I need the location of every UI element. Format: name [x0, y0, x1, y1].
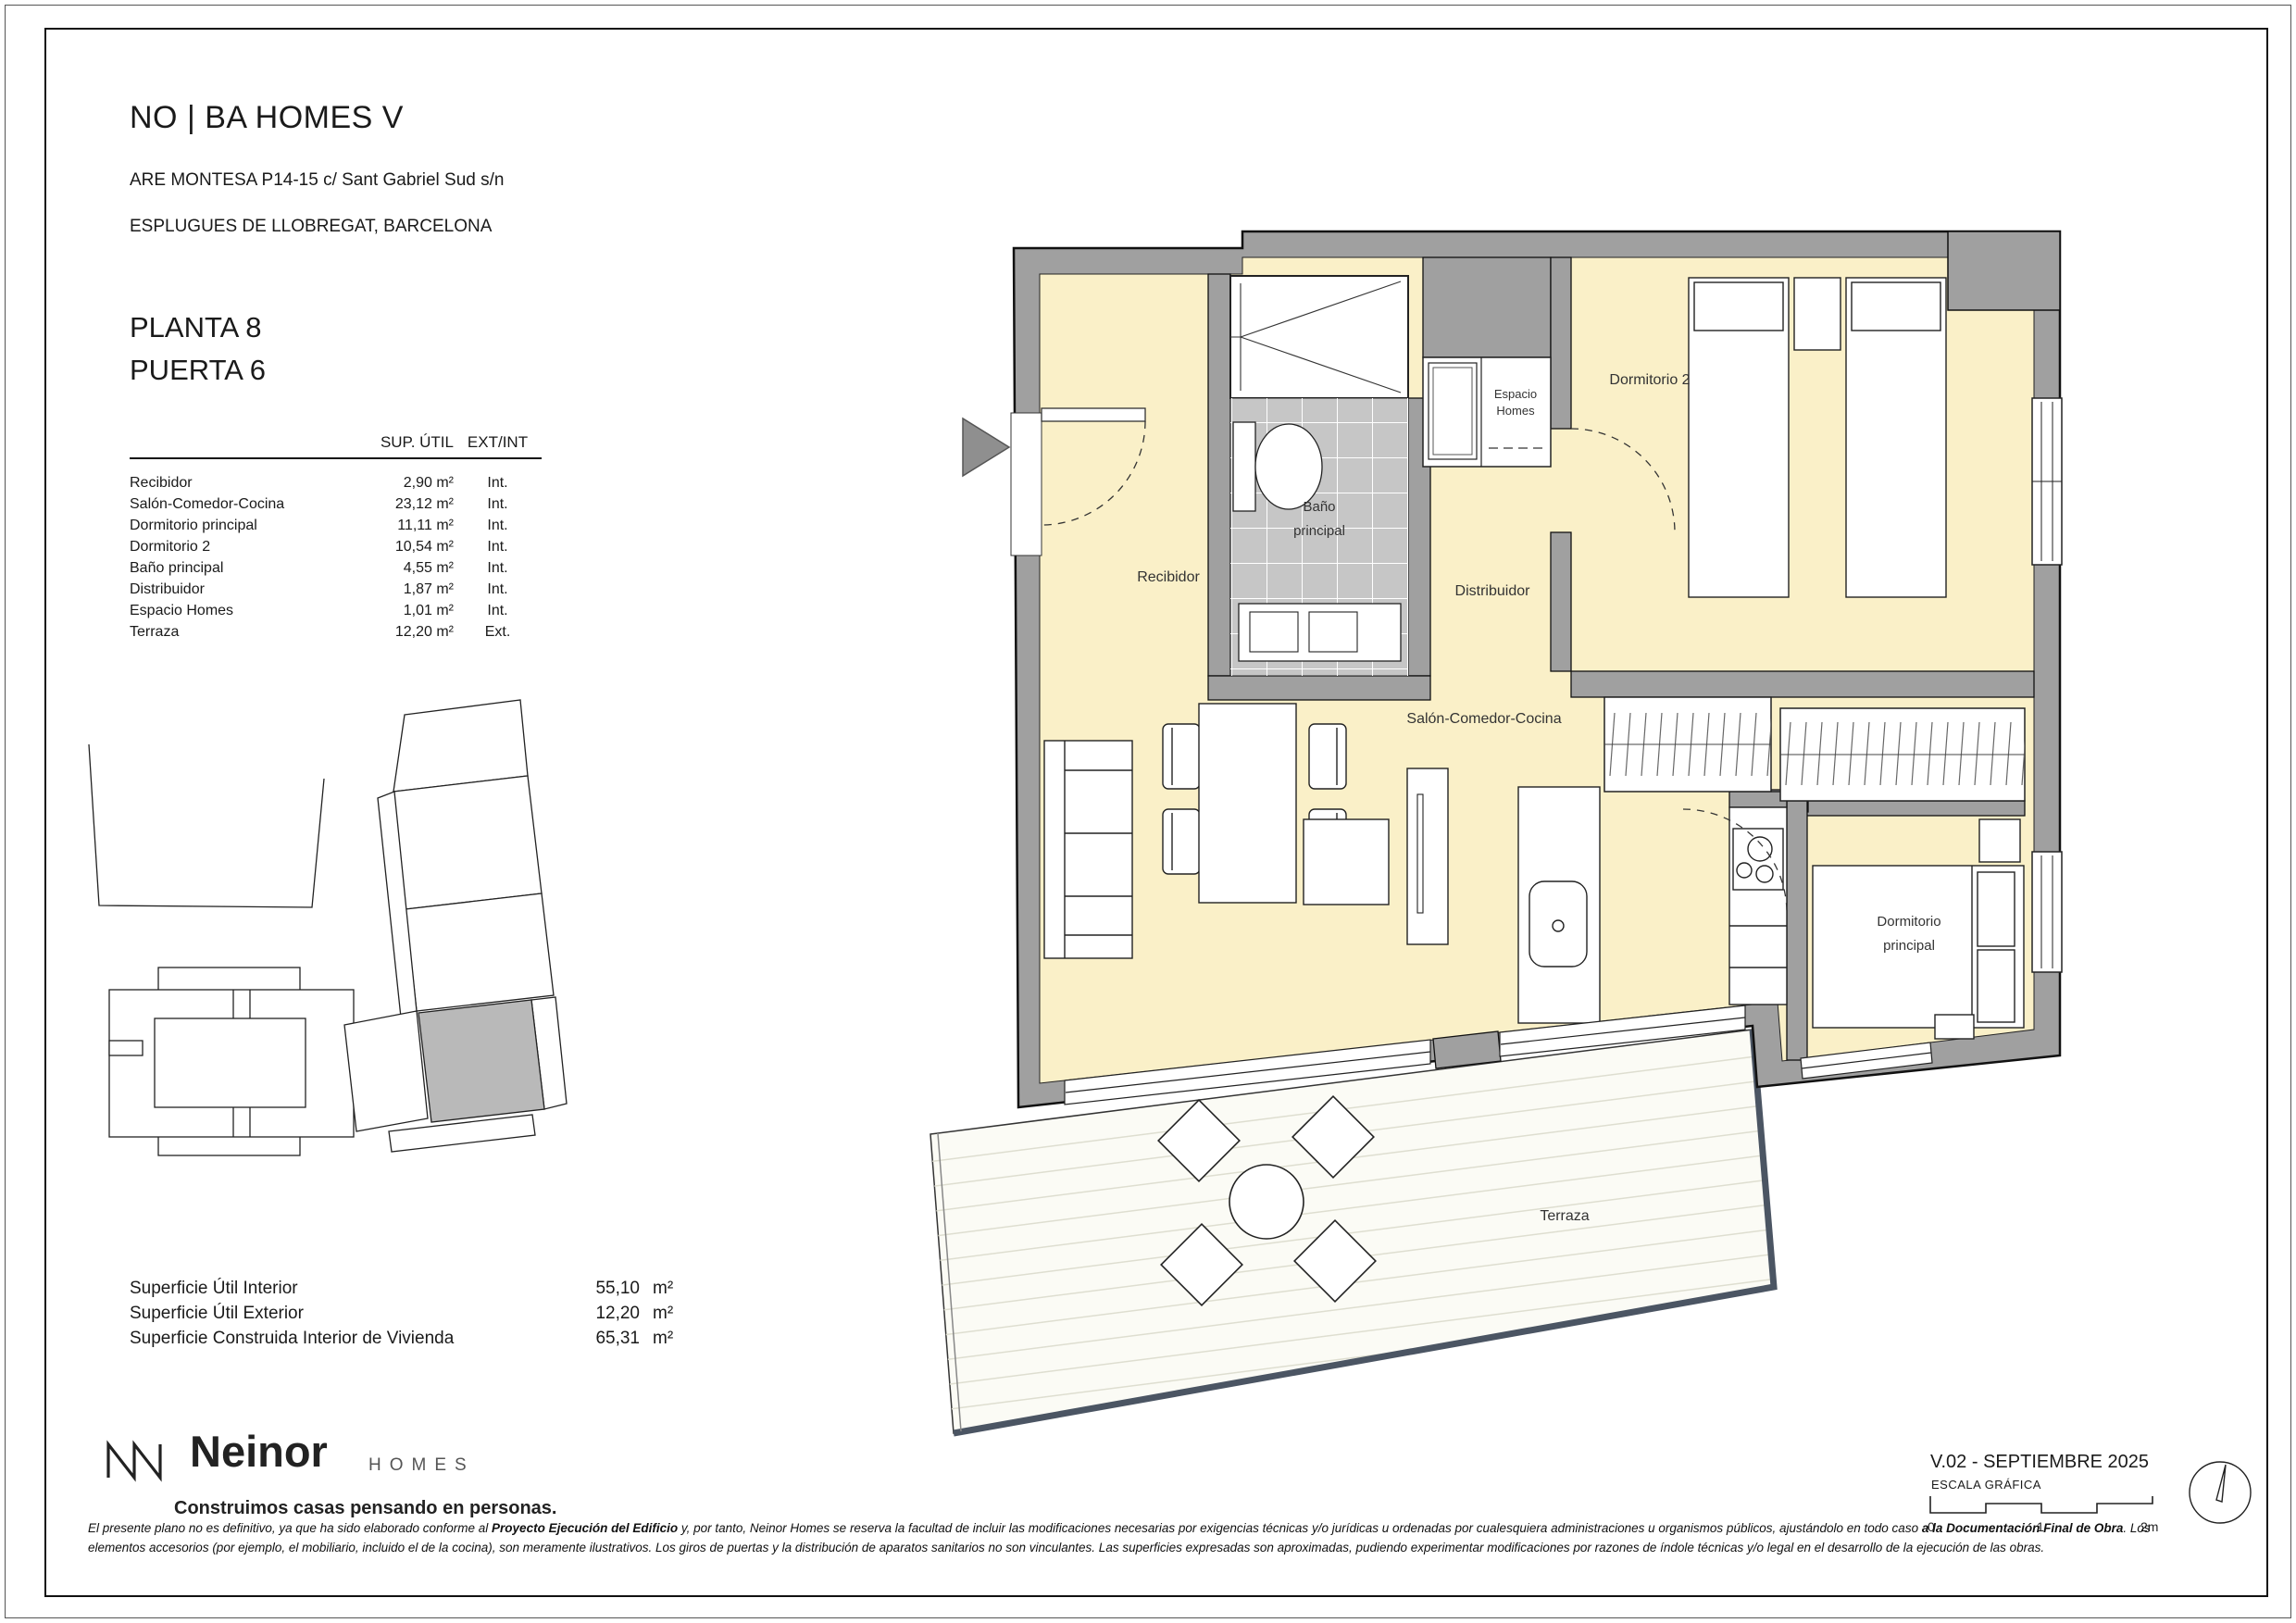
highlighted-unit — [418, 1000, 544, 1122]
label-dormppal-1: Dormitorio — [1877, 914, 1940, 930]
kitchen-counter-icon — [1729, 807, 1787, 1005]
vanity-icon — [1239, 604, 1401, 661]
site-boundary — [89, 744, 324, 907]
address-line2: ESPLUGUES DE LLOBREGAT, BARCELONA — [130, 217, 492, 237]
logo-sub: HOMES — [368, 1455, 475, 1476]
wardrobes — [1604, 697, 2025, 801]
room-area: 11,11 m² — [338, 515, 454, 536]
neinor-logo-icon — [104, 1433, 180, 1489]
label-recibidor: Recibidor — [1137, 569, 1200, 585]
wardrobe-1-icon — [1604, 697, 1771, 792]
floor-label: PLANTA 8 — [130, 311, 261, 344]
table-row: Dormitorio principal 11,11 m² Int. — [130, 515, 542, 536]
coffee-table-icon — [1304, 819, 1389, 905]
summary-value: 12,20 — [569, 1301, 653, 1326]
table-row: Recibidor 2,90 m² Int. — [130, 472, 542, 493]
room-area: 23,12 m² — [338, 493, 454, 515]
sink-icon — [1553, 920, 1564, 931]
summary-row: Superficie Útil Interior 55,10 m² — [130, 1276, 694, 1301]
summary-unit: m² — [653, 1301, 694, 1326]
entrance-door-leaf — [1042, 408, 1145, 421]
counter-anchor-wall — [1729, 792, 1787, 807]
address-line1: ARE MONTESA P14-15 c/ Sant Gabriel Sud s… — [130, 170, 504, 191]
areas-table-header: SUP. ÚTIL EXT/INT — [130, 433, 542, 459]
room-name: Baño principal — [130, 557, 338, 579]
nightstand-icon — [1979, 819, 2020, 862]
label-espacio-2: Homes — [1496, 404, 1535, 418]
dorm2-left-wall-top — [1551, 257, 1571, 429]
room-type: Int. — [454, 579, 542, 600]
table-row: Espacio Homes 1,01 m² Int. — [130, 600, 542, 621]
room-name: Espacio Homes — [130, 600, 338, 621]
header-sup-util: SUP. ÚTIL — [338, 433, 454, 452]
wardrobe-2-icon — [1780, 708, 2025, 801]
north-compass-icon — [2190, 1462, 2251, 1523]
summary-row: Superficie Construida Interior de Vivien… — [130, 1326, 694, 1351]
bath-bottom-wall — [1208, 676, 1430, 700]
room-name: Terraza — [130, 621, 338, 643]
kitchen-bedroom-wall — [1787, 801, 1807, 1060]
room-type: Int. — [454, 557, 542, 579]
table-row: Baño principal 4,55 m² Int. — [130, 557, 542, 579]
bath-left-wall — [1208, 274, 1230, 676]
key-plan — [89, 700, 567, 1155]
floor-plan-svg: Recibidor Baño principal Espacio Homes D… — [0, 0, 2296, 1623]
room-area: 2,90 m² — [338, 472, 454, 493]
room-name: Dormitorio principal — [130, 515, 338, 536]
kitchen-island-icon — [1518, 787, 1600, 1023]
room-name: Dormitorio 2 — [130, 536, 338, 557]
summary-unit: m² — [653, 1276, 694, 1301]
summary-row: Superficie Útil Exterior 12,20 m² — [130, 1301, 694, 1326]
header-ext-int: EXT/INT — [454, 433, 542, 452]
shower-icon — [1230, 276, 1408, 398]
page-title: NO | BA HOMES V — [130, 100, 404, 136]
plan-version: V.02 - SEPTIEMBRE 2025 — [1930, 1452, 2149, 1473]
room-type: Int. — [454, 600, 542, 621]
terrace-table-icon — [1229, 1165, 1304, 1239]
bed-single-2-icon — [1846, 278, 1946, 597]
logo-brand: Neinor — [190, 1426, 328, 1477]
room-type: Int. — [454, 493, 542, 515]
hob-icon — [1733, 829, 1783, 890]
espacio-top-wall — [1423, 257, 1551, 357]
table-row: Distribuidor 1,87 m² Int. — [130, 579, 542, 600]
label-salon: Salón-Comedor-Cocina — [1406, 711, 1561, 727]
room-name: Salón-Comedor-Cocina — [130, 493, 338, 515]
dorm2-bottom-wall — [1571, 671, 2034, 697]
label-dormitorio2: Dormitorio 2 — [1609, 372, 1690, 388]
room-name: Distribuidor — [130, 579, 338, 600]
room-type: Int. — [454, 515, 542, 536]
table-row: Dormitorio 2 10,54 m² Int. — [130, 536, 542, 557]
summary-label: Superficie Útil Interior — [130, 1276, 569, 1301]
nightstand-icon — [1794, 278, 1841, 350]
window-dormitorio2 — [2032, 398, 2062, 565]
logo-tagline: Construimos casas pensando en personas. — [174, 1498, 556, 1519]
label-distribuidor: Distribuidor — [1455, 583, 1531, 599]
room-area: 1,01 m² — [338, 600, 454, 621]
table-row: Terraza 12,20 m² Ext. — [130, 621, 542, 643]
plan-sheet: Recibidor Baño principal Espacio Homes D… — [0, 0, 2296, 1623]
summary-value: 55,10 — [569, 1276, 653, 1301]
wall-under-wardrobe2 — [1780, 801, 2025, 816]
summary-unit: m² — [653, 1326, 694, 1351]
disclaimer-text: El presente plano no es definitivo, ya q… — [88, 1518, 2157, 1557]
table-row: Salón-Comedor-Cocina 23,12 m² Int. — [130, 493, 542, 515]
room-type: Ext. — [454, 621, 542, 643]
summary-table: Superficie Útil Interior 55,10 m² Superf… — [130, 1276, 694, 1351]
label-bano-2: principal — [1293, 523, 1345, 539]
summary-label: Superficie Construida Interior de Vivien… — [130, 1326, 569, 1351]
sofa-icon — [1044, 741, 1132, 958]
summary-value: 65,31 — [569, 1326, 653, 1351]
toilet-icon — [1233, 422, 1322, 511]
entrance-arrow-icon — [963, 418, 1009, 476]
washer-icon — [1429, 363, 1477, 459]
room-area: 10,54 m² — [338, 536, 454, 557]
summary-label: Superficie Útil Exterior — [130, 1301, 569, 1326]
areas-table: SUP. ÚTIL EXT/INT Recibidor 2,90 m² Int.… — [130, 433, 542, 643]
room-type: Int. — [454, 472, 542, 493]
scale-label: ESCALA GRÁFICA — [1931, 1478, 2041, 1492]
tv-unit-icon — [1407, 768, 1448, 944]
room-area: 12,20 m² — [338, 621, 454, 643]
label-espacio-1: Espacio — [1494, 387, 1537, 401]
corner-wall-block — [1948, 231, 2060, 310]
label-bano-1: Baño — [1303, 499, 1335, 515]
building-left — [109, 968, 354, 1155]
areas-table-rows: Recibidor 2,90 m² Int. Salón-Comedor-Coc… — [130, 472, 542, 643]
room-area: 1,87 m² — [338, 579, 454, 600]
header-spacer — [130, 433, 338, 452]
nightstand-icon — [1935, 1015, 1974, 1039]
bed-single-1-icon — [1689, 278, 1789, 597]
label-dormppal-2: principal — [1883, 938, 1935, 954]
entrance-threshold — [1011, 413, 1042, 556]
bathroom — [1230, 276, 1408, 676]
label-terraza: Terraza — [1540, 1208, 1589, 1224]
room-name: Recibidor — [130, 472, 338, 493]
room-area: 4,55 m² — [338, 557, 454, 579]
dorm2-left-wall-bottom — [1551, 532, 1571, 671]
room-type: Int. — [454, 536, 542, 557]
door-label: PUERTA 6 — [130, 354, 266, 387]
building-right — [344, 700, 567, 1152]
window-dormitorio-principal — [2032, 852, 2062, 972]
